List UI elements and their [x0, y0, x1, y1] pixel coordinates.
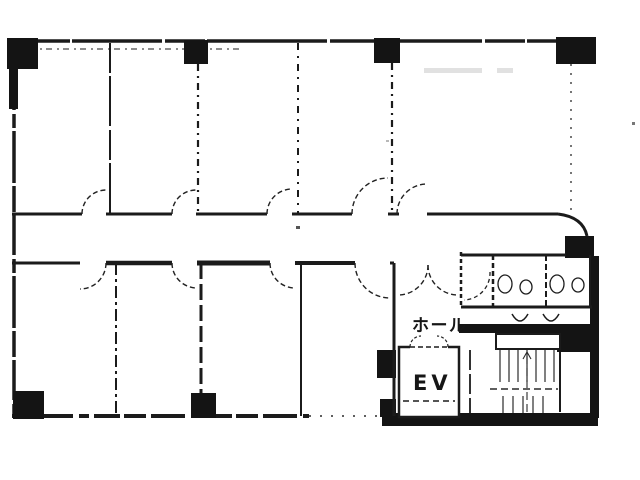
elevator-door-arc	[410, 336, 421, 347]
door-arc	[172, 263, 197, 288]
bottom-row-door-arcs	[80, 263, 390, 298]
column	[556, 37, 596, 64]
door-arc	[172, 190, 196, 214]
column	[184, 40, 208, 64]
door-arc	[80, 263, 106, 289]
door-arc	[397, 184, 427, 214]
door-arc	[267, 189, 292, 214]
stair-treads-upper	[500, 350, 554, 382]
exterior-walls	[10, 41, 596, 418]
elevator-door-arc	[437, 336, 448, 347]
corridor-top-wall	[12, 214, 587, 236]
hall: ホール	[398, 252, 490, 336]
elevator: EV	[399, 336, 459, 417]
bottom-row-partitions	[116, 263, 394, 416]
hall-label: ホール	[412, 316, 468, 336]
door-arc	[270, 263, 295, 288]
toilet-block	[461, 255, 592, 321]
wall-stair-top-thick	[557, 330, 598, 352]
double-door-arc-right	[428, 265, 458, 295]
door-arc	[355, 263, 390, 298]
staircase	[470, 334, 560, 413]
top-row-partitions	[110, 43, 392, 213]
double-door-arc-left	[398, 265, 428, 295]
column	[565, 236, 594, 258]
urinal-fixture	[543, 314, 559, 321]
door-arc	[352, 178, 388, 214]
column	[374, 38, 400, 63]
toilet-fixture	[520, 280, 532, 294]
urinal-fixture	[512, 314, 528, 321]
scan-noise	[296, 68, 635, 229]
column	[7, 38, 38, 69]
toilet-fixture	[498, 275, 512, 293]
stair-treads-lower	[503, 396, 543, 413]
column	[9, 69, 18, 109]
stair-landing	[496, 334, 560, 349]
toilet-fixture	[572, 278, 584, 292]
toilet-fixtures	[498, 275, 584, 321]
door-arc	[82, 190, 106, 214]
floor-plan-canvas: ホール	[0, 0, 640, 480]
top-row-door-arcs	[82, 178, 427, 214]
toilet-fixture	[550, 275, 564, 293]
column	[191, 393, 216, 418]
floor-plan-page: ホール	[0, 0, 640, 480]
elevator-label: EV	[413, 371, 452, 395]
vestibule-door-arc	[464, 272, 490, 300]
columns	[7, 37, 599, 426]
column	[13, 391, 44, 419]
